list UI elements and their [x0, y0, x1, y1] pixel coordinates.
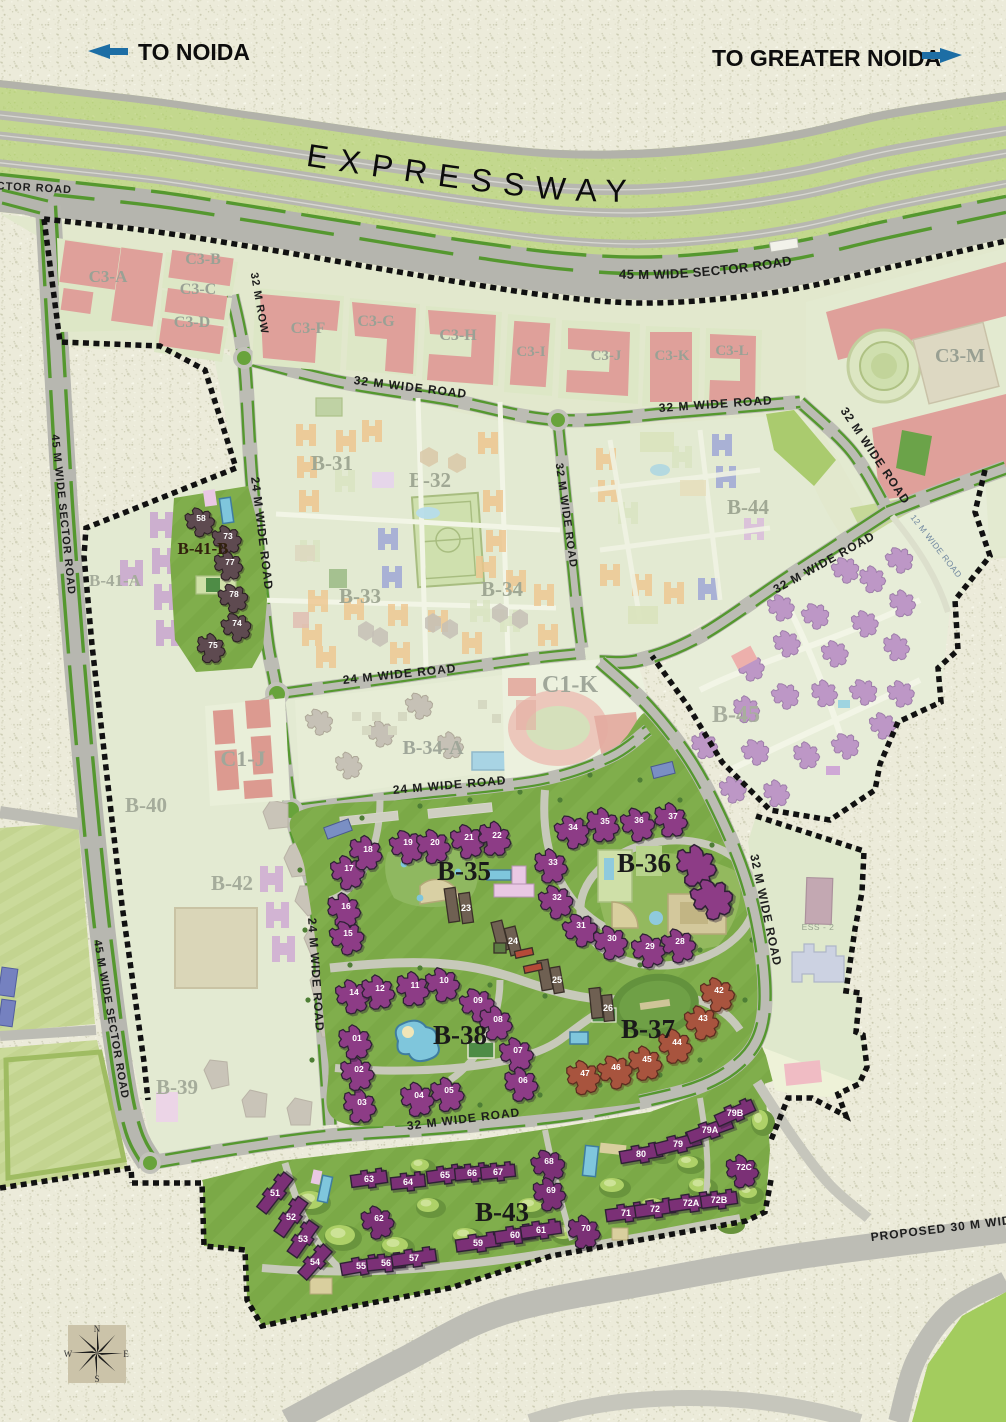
svg-text:ESS - 2: ESS - 2 [802, 922, 835, 932]
svg-text:B-41-A: B-41-A [89, 571, 142, 590]
svg-text:75: 75 [208, 640, 218, 650]
svg-text:05: 05 [444, 1085, 454, 1095]
svg-text:C1-K: C1-K [542, 672, 598, 698]
svg-text:17: 17 [344, 863, 354, 873]
svg-text:25: 25 [552, 975, 562, 985]
svg-text:67: 67 [493, 1167, 503, 1177]
svg-text:B-45: B-45 [712, 702, 760, 728]
svg-text:C1-J: C1-J [220, 746, 265, 771]
svg-text:66: 66 [467, 1168, 477, 1178]
svg-text:23: 23 [461, 903, 471, 913]
svg-text:42: 42 [714, 985, 724, 995]
svg-text:C3-B: C3-B [185, 251, 221, 268]
svg-text:37: 37 [668, 811, 678, 821]
svg-text:02: 02 [354, 1064, 364, 1074]
svg-text:64: 64 [403, 1177, 413, 1187]
svg-text:TO NOIDA: TO NOIDA [138, 39, 250, 65]
svg-text:C3-M: C3-M [935, 345, 985, 367]
svg-text:W: W [64, 1349, 73, 1359]
svg-text:69: 69 [546, 1185, 556, 1195]
svg-text:TO GREATER NOIDA: TO GREATER NOIDA [712, 45, 941, 71]
svg-text:74: 74 [232, 618, 242, 628]
svg-text:77: 77 [225, 557, 235, 567]
svg-text:51: 51 [270, 1188, 280, 1198]
svg-text:32: 32 [552, 892, 562, 902]
svg-text:58: 58 [196, 513, 206, 523]
svg-text:B-35: B-35 [437, 856, 491, 886]
svg-text:47: 47 [580, 1068, 590, 1078]
svg-text:54: 54 [310, 1257, 320, 1267]
svg-text:B-37: B-37 [621, 1014, 675, 1044]
svg-text:35: 35 [600, 816, 610, 826]
svg-text:C3-K: C3-K [655, 348, 690, 364]
svg-text:31: 31 [576, 920, 586, 930]
svg-text:61: 61 [536, 1225, 546, 1235]
svg-text:C3-D: C3-D [174, 314, 210, 331]
svg-text:14: 14 [349, 987, 359, 997]
svg-text:55: 55 [356, 1261, 366, 1271]
svg-text:09: 09 [473, 995, 483, 1005]
svg-text:B-39: B-39 [156, 1075, 198, 1099]
svg-text:S: S [94, 1374, 99, 1384]
svg-text:79: 79 [673, 1139, 683, 1149]
svg-text:C3-L: C3-L [715, 343, 748, 359]
svg-text:71: 71 [621, 1208, 631, 1218]
svg-text:C3-I: C3-I [516, 344, 545, 360]
svg-text:24: 24 [508, 936, 518, 946]
svg-text:16: 16 [341, 901, 351, 911]
svg-text:C3-J: C3-J [591, 348, 622, 364]
svg-text:20: 20 [430, 837, 440, 847]
svg-text:B-42: B-42 [211, 871, 253, 895]
svg-text:57: 57 [409, 1253, 419, 1263]
svg-text:59: 59 [473, 1238, 483, 1248]
svg-text:36: 36 [634, 815, 644, 825]
svg-text:C3-C: C3-C [180, 281, 216, 298]
svg-text:68: 68 [544, 1156, 554, 1166]
svg-text:B-40: B-40 [125, 793, 167, 817]
svg-text:B-43: B-43 [475, 1197, 529, 1227]
svg-text:78: 78 [229, 589, 239, 599]
svg-text:56: 56 [381, 1258, 391, 1268]
svg-text:N: N [94, 1324, 101, 1334]
svg-text:B-34: B-34 [481, 577, 524, 601]
svg-text:C3-F: C3-F [291, 320, 326, 337]
svg-text:21: 21 [464, 832, 474, 842]
svg-text:46: 46 [611, 1062, 621, 1072]
svg-text:80: 80 [636, 1149, 646, 1159]
svg-text:60: 60 [510, 1230, 520, 1240]
svg-text:33: 33 [548, 857, 558, 867]
svg-text:26: 26 [603, 1003, 613, 1013]
svg-text:E: E [123, 1349, 129, 1359]
svg-text:10: 10 [439, 975, 449, 985]
svg-text:34: 34 [568, 822, 578, 832]
svg-text:63: 63 [364, 1174, 374, 1184]
svg-text:22: 22 [492, 830, 502, 840]
svg-text:01: 01 [352, 1033, 362, 1043]
svg-text:18: 18 [363, 844, 373, 854]
svg-text:B-36: B-36 [617, 848, 671, 878]
svg-text:62: 62 [374, 1213, 384, 1223]
svg-text:30: 30 [607, 933, 617, 943]
svg-text:72: 72 [650, 1204, 660, 1214]
svg-text:28: 28 [675, 936, 685, 946]
svg-text:04: 04 [414, 1090, 424, 1100]
svg-text:B-34-A: B-34-A [402, 737, 464, 759]
svg-text:11: 11 [411, 980, 420, 990]
svg-text:12: 12 [375, 983, 385, 993]
svg-text:79A: 79A [702, 1125, 719, 1135]
svg-text:B-41-B: B-41-B [178, 539, 229, 558]
svg-text:79B: 79B [727, 1108, 744, 1118]
svg-text:65: 65 [440, 1170, 450, 1180]
svg-text:43: 43 [698, 1013, 708, 1023]
svg-text:72B: 72B [711, 1195, 728, 1205]
svg-text:C3-G: C3-G [357, 313, 395, 330]
svg-text:C3-A: C3-A [89, 267, 128, 286]
svg-text:15: 15 [343, 928, 353, 938]
svg-text:19: 19 [403, 837, 413, 847]
svg-text:03: 03 [357, 1097, 367, 1107]
svg-text:B-44: B-44 [727, 495, 770, 519]
svg-text:08: 08 [493, 1014, 503, 1024]
svg-text:B-38: B-38 [433, 1020, 487, 1050]
svg-text:72C: 72C [736, 1162, 752, 1172]
svg-text:B-31: B-31 [311, 451, 353, 475]
svg-text:70: 70 [581, 1223, 591, 1233]
svg-text:52: 52 [286, 1212, 296, 1222]
svg-text:45: 45 [642, 1054, 652, 1064]
svg-text:53: 53 [298, 1234, 308, 1244]
svg-text:07: 07 [513, 1045, 523, 1055]
svg-text:29: 29 [645, 941, 655, 951]
svg-text:C3-H: C3-H [439, 327, 477, 344]
svg-text:72A: 72A [683, 1198, 700, 1208]
svg-text:B-32: B-32 [409, 468, 451, 492]
svg-text:06: 06 [518, 1075, 528, 1085]
